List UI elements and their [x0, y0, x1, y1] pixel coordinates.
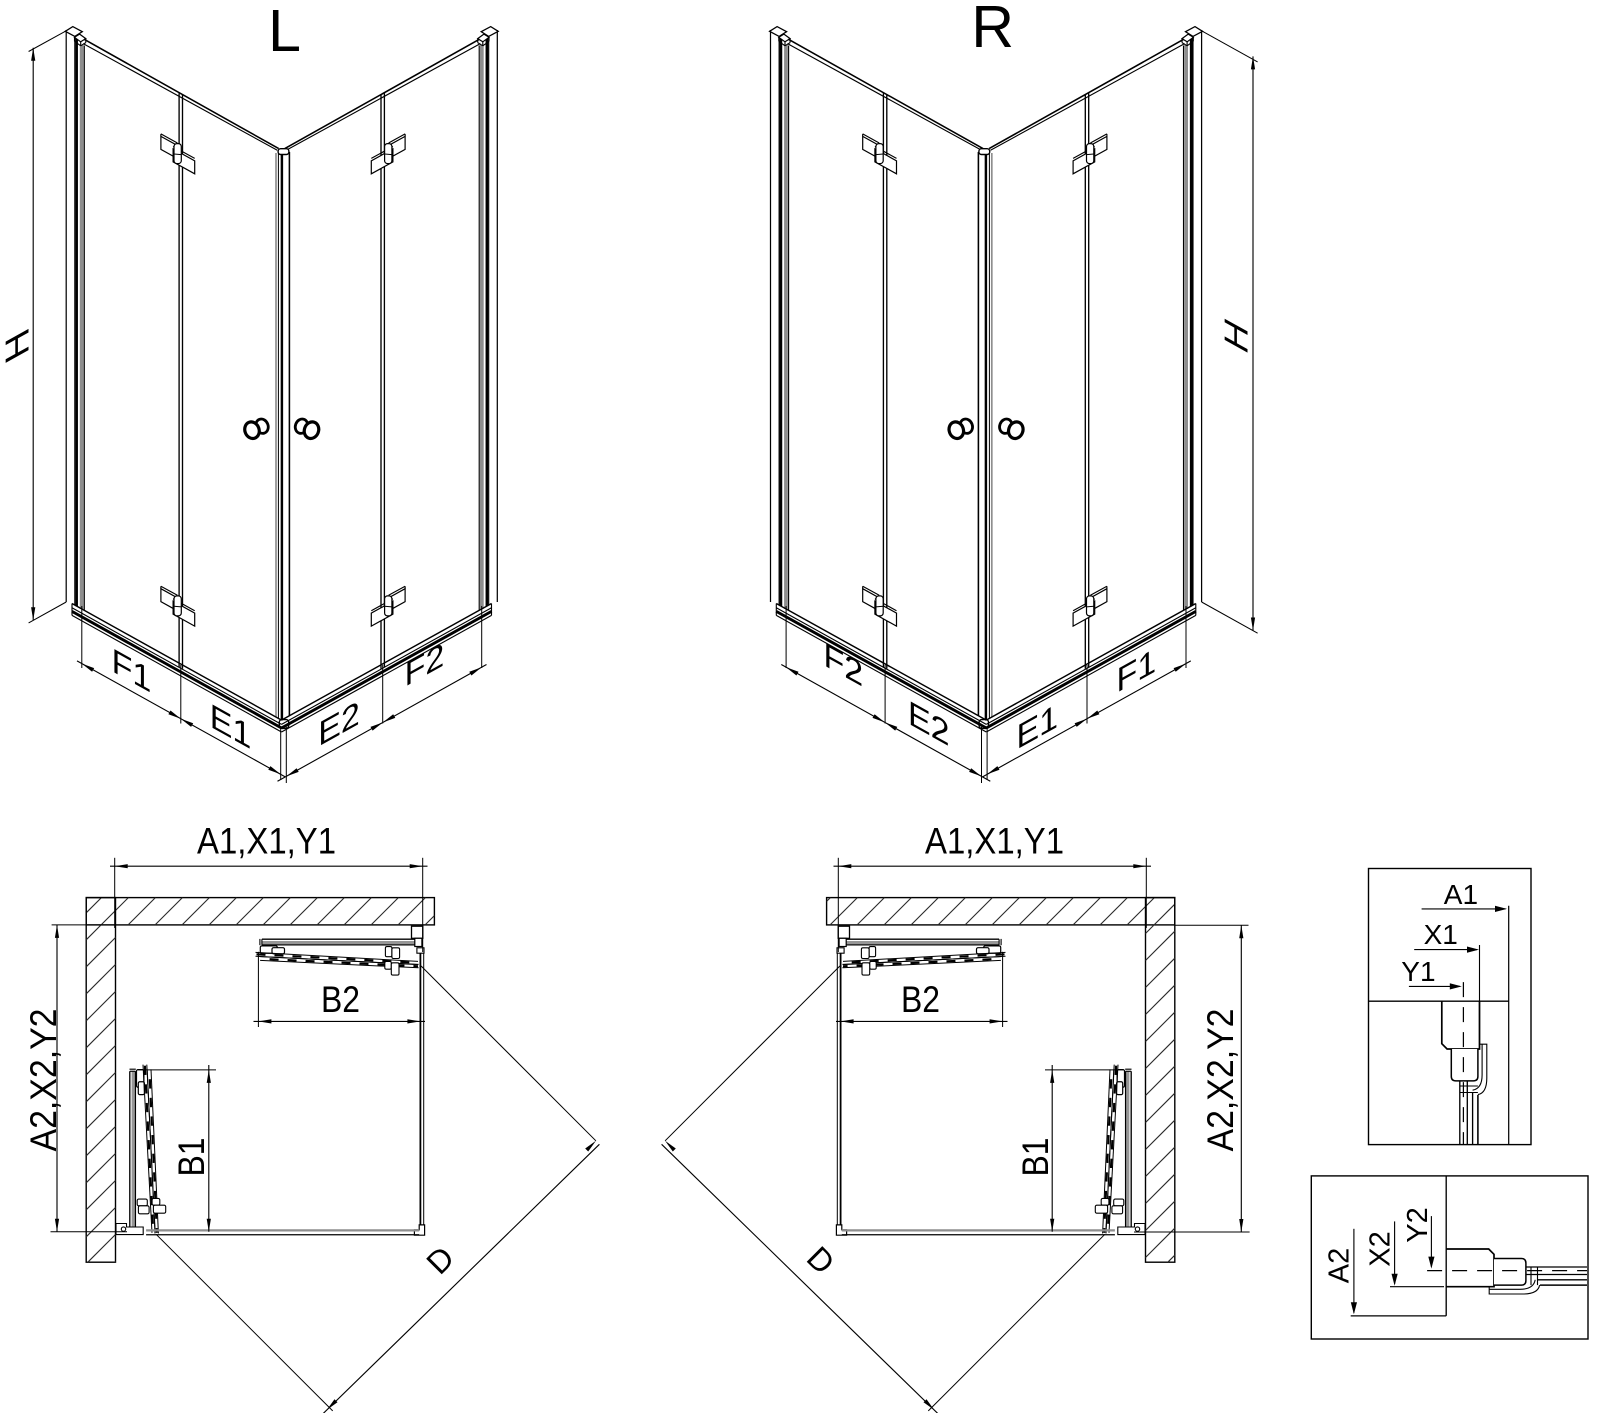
svg-text:A2,X2,Y2: A2,X2,Y2	[23, 1009, 64, 1152]
svg-text:A1,X1,Y1: A1,X1,Y1	[197, 821, 336, 862]
svg-text:A1,X1,Y1: A1,X1,Y1	[925, 821, 1064, 862]
svg-text:R: R	[971, 0, 1014, 60]
svg-text:X1: X1	[1424, 919, 1458, 950]
svg-text:B1: B1	[171, 1138, 212, 1177]
svg-text:B1: B1	[1015, 1138, 1056, 1177]
svg-text:L: L	[268, 0, 301, 64]
svg-text:B2: B2	[901, 979, 940, 1020]
svg-text:A1: A1	[1444, 879, 1478, 910]
svg-text:Y2: Y2	[1402, 1207, 1434, 1242]
svg-text:A2: A2	[1324, 1248, 1356, 1283]
svg-text:X2: X2	[1365, 1231, 1397, 1266]
svg-text:Y1: Y1	[1401, 956, 1435, 987]
svg-text:A2,X2,Y2: A2,X2,Y2	[1200, 1009, 1241, 1152]
svg-text:B2: B2	[321, 979, 360, 1020]
